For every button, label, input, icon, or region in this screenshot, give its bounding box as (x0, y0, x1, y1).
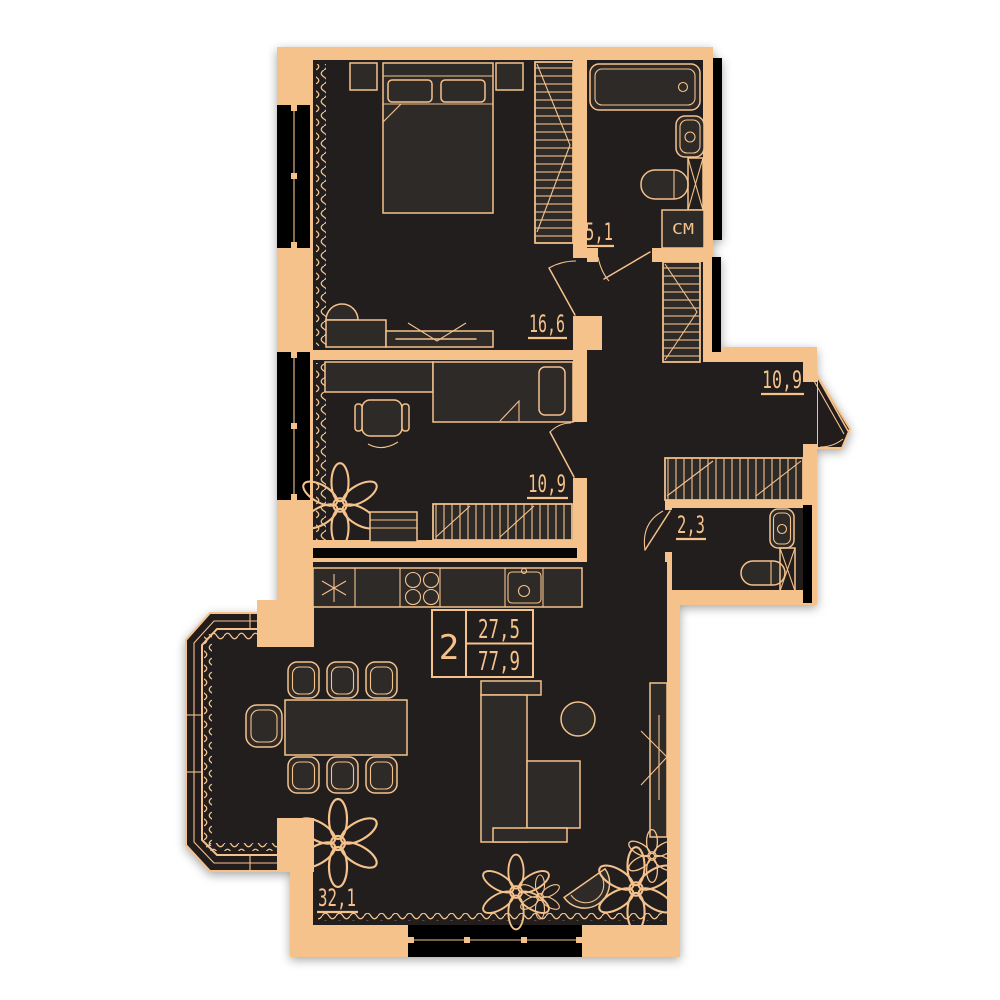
curtain-bay-left (204, 634, 212, 846)
floor-plan: СМ (0, 0, 1000, 1000)
desk (325, 362, 433, 392)
bathtub (590, 64, 700, 110)
radiator-kids (433, 504, 572, 540)
bathroom-sink (676, 116, 704, 157)
dining-chair (366, 757, 397, 793)
dining-chair (327, 757, 358, 793)
dining-chair (288, 757, 319, 793)
room-count: 2 (439, 628, 459, 668)
dining-table (285, 700, 407, 755)
wc-doorway (663, 510, 672, 552)
wall-patch-bedroom-corner (573, 316, 602, 350)
double-bed (383, 63, 493, 213)
kitchen-counter (313, 568, 582, 607)
curtain-bay-top (206, 632, 288, 640)
kitchen-wall-strip (313, 548, 577, 558)
toilet-bathroom (641, 170, 688, 199)
washing-machine: СМ (662, 210, 704, 248)
total-area-value: 77,9 (478, 647, 520, 677)
entrance-doorway (803, 382, 817, 444)
bench (370, 512, 417, 542)
svg-text:2,3: 2,3 (677, 511, 705, 539)
nightstand-right (496, 63, 523, 90)
svg-text:32,1: 32,1 (318, 884, 356, 912)
shaft-band-wc-right (803, 505, 812, 603)
curtain-bay-bottom (206, 843, 288, 851)
svg-text:5,1: 5,1 (585, 218, 613, 246)
dresser-cabinet (326, 320, 386, 347)
dining-chair-head (246, 705, 282, 747)
dining-chair (288, 662, 319, 698)
shaft-band-mid-right (712, 257, 721, 352)
window-bottom (408, 925, 582, 957)
wc-sink (770, 509, 794, 548)
label-bedroom-area: 16,6 (528, 310, 567, 338)
dining-chair (327, 662, 358, 698)
dining-chair (366, 662, 397, 698)
kitchen (313, 568, 582, 607)
curtain-bedroom (316, 64, 326, 346)
svg-text:10,9: 10,9 (528, 470, 566, 498)
label-bathroom-area: 5,1 (584, 218, 614, 246)
wardrobe-hall-top (663, 262, 700, 362)
single-bed (433, 362, 573, 422)
nightstand-left (350, 63, 377, 90)
label-kids-area: 10,9 (527, 470, 568, 498)
curtain-living (318, 913, 662, 921)
bedroom-doorway (573, 258, 587, 316)
label-hallway-area: 10,9 (761, 366, 804, 394)
coffee-table (561, 702, 595, 736)
label-wc-area: 2,3 (676, 511, 706, 539)
label-living-area: 32,1 (317, 884, 358, 912)
svg-text:16,6: 16,6 (529, 310, 565, 338)
wardrobe-hall-bottom (665, 458, 803, 500)
living-area-value: 27,5 (478, 615, 520, 645)
washing-machine-label: СМ (672, 220, 694, 238)
kids-doorway (571, 422, 587, 478)
shaft-band-top-right (713, 58, 722, 240)
svg-text:10,9: 10,9 (762, 366, 802, 394)
wardrobe-bedroom (535, 62, 573, 243)
toilet-wc (741, 561, 785, 585)
